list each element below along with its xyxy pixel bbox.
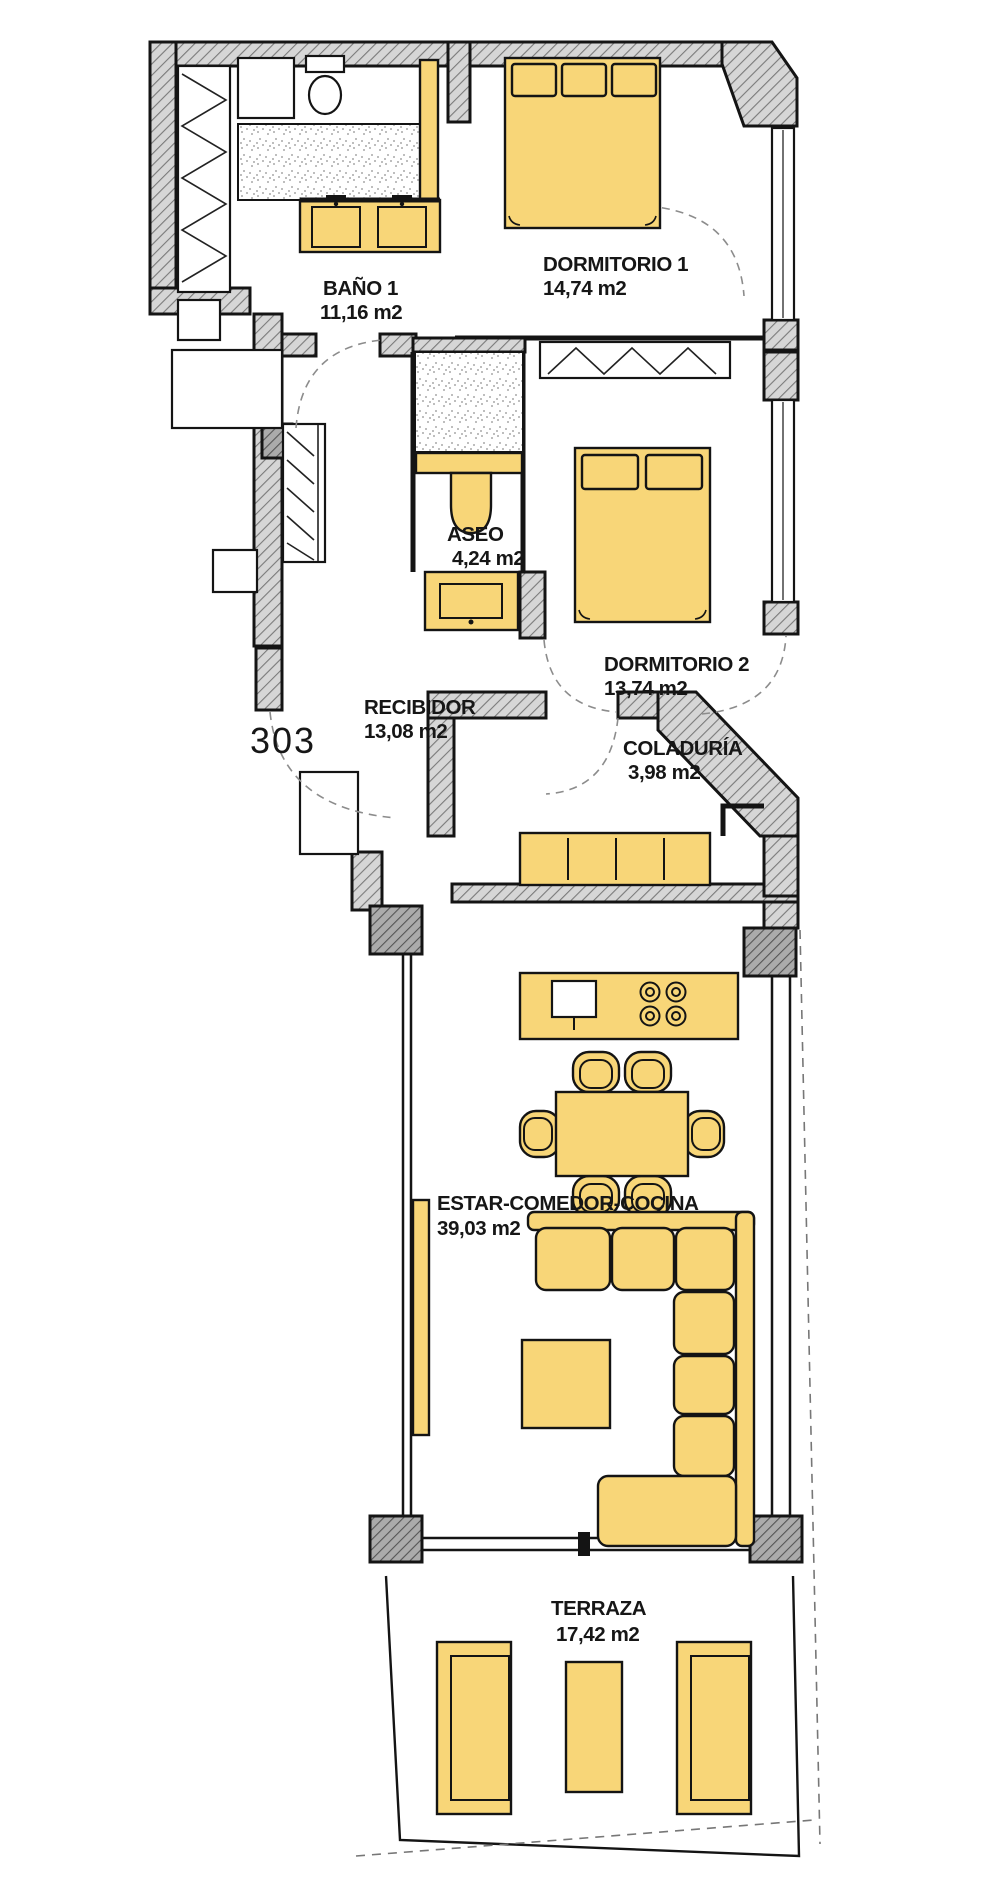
- room-name-terraza: TERRAZA: [551, 1597, 647, 1620]
- dining-chair: [520, 1111, 560, 1157]
- room-name-dormitorio1: DORMITORIO 1: [543, 253, 688, 276]
- west-wall: [150, 42, 176, 294]
- bath1-faucet-dot-left: [334, 202, 338, 206]
- sideboard: [413, 1200, 429, 1435]
- entry-shaft: [300, 772, 358, 854]
- bed1-pillow-1: [512, 64, 556, 96]
- hall-north-wall-a: [282, 334, 316, 356]
- bedroom2-door-swing: [544, 640, 616, 712]
- room-name-estar: ESTAR-COMEDOR-COCINA: [437, 1192, 699, 1215]
- dining-chair: [684, 1111, 724, 1157]
- coladuria-door-swing: [546, 718, 618, 794]
- bath1-group: [238, 56, 440, 252]
- room-area-terraza: 17,42 m2: [556, 1623, 639, 1646]
- bedroom2-door-leaf: [520, 572, 545, 638]
- floor-plan-drawing: BAÑO 1 11,16 m2 DORMITORIO 1 14,74 m2 AS…: [0, 0, 1000, 1894]
- bed1-pillow-2: [562, 64, 606, 96]
- bath1-partition-stub: [448, 42, 470, 122]
- shaft-upper: [178, 300, 220, 340]
- lounger-left: [437, 1642, 511, 1814]
- coffee-table: [522, 1340, 610, 1428]
- bed2-pillow-2: [646, 455, 702, 489]
- kitchen-sink: [552, 981, 596, 1017]
- room-name-recibidor: RECIBIDOR: [364, 696, 476, 719]
- coladuria-south-wall: [452, 884, 798, 902]
- bath1-shower-tray: [238, 58, 294, 118]
- aseo-group: [415, 352, 523, 630]
- east-wall-block-3: [764, 602, 798, 634]
- hall-window-box: [213, 550, 257, 592]
- shaft-lower: [172, 350, 282, 428]
- room-name-aseo: ASEO: [447, 523, 504, 546]
- pillar-living-nw: [370, 906, 422, 954]
- dining-chair: [573, 1052, 619, 1092]
- northeast-corner-wall: [722, 42, 797, 126]
- bath1-faucet-dot-right: [400, 202, 404, 206]
- terrace-table: [566, 1662, 622, 1792]
- bath1-shower-floor: [238, 124, 420, 200]
- bed2-pillow-1: [582, 455, 638, 489]
- bath1-side-panel: [420, 60, 438, 200]
- overhang-dashed-right: [800, 930, 820, 1844]
- aseo-shelf: [416, 453, 522, 473]
- east-wall-block-5: [764, 902, 798, 928]
- room-area-dormitorio1: 14,74 m2: [543, 277, 626, 300]
- bath1-faucet-right: [392, 195, 412, 200]
- room-area-estar: 39,03 m2: [437, 1217, 520, 1240]
- room-area-bano1: 11,16 m2: [320, 301, 402, 324]
- bed1-pillow-3: [612, 64, 656, 96]
- dining-chair: [625, 1052, 671, 1092]
- aseo-shower-floor: [415, 352, 523, 452]
- dining-table: [556, 1092, 688, 1176]
- room-name-bano1: BAÑO 1: [323, 277, 398, 300]
- east-wall-block-4: [764, 836, 798, 896]
- room-area-aseo: 4,24 m2: [452, 547, 524, 570]
- room-name-coladuria: COLADURÍA: [623, 737, 743, 760]
- room-area-recibidor: 13,08 m2: [364, 720, 447, 743]
- entry-door-leaf: [256, 648, 282, 710]
- overhang-dashed-bottom: [356, 1820, 814, 1856]
- bath1-toilet-bowl: [309, 76, 341, 114]
- bath1-toilet-tank: [306, 56, 344, 72]
- bedroom2-group: [575, 448, 710, 622]
- terrace-slider-mullion: [578, 1532, 590, 1556]
- room-name-dormitorio2: DORMITORIO 2: [604, 653, 749, 676]
- bedroom1-group: [505, 58, 660, 228]
- lounger-right: [677, 1642, 751, 1814]
- pillar-living-se: [750, 1516, 802, 1562]
- floor-plan: BAÑO 1 11,16 m2 DORMITORIO 1 14,74 m2 AS…: [0, 0, 1000, 1894]
- room-area-coladuria: 3,98 m2: [628, 761, 700, 784]
- aseo-cabinet-knob: [469, 620, 474, 625]
- east-wall-block-2: [764, 352, 798, 400]
- entry-lower-wall: [352, 852, 382, 910]
- coladuria-group: [520, 833, 710, 885]
- pillar-living-ne: [744, 928, 796, 976]
- east-wall-block-1: [764, 320, 798, 350]
- room-area-dormitorio2: 13,74 m2: [604, 677, 687, 700]
- bath1-faucet-left: [326, 195, 346, 200]
- living-kitchen-group: [413, 973, 754, 1546]
- bedroom1-door-swing: [648, 206, 744, 296]
- apartment-number: 303: [250, 720, 316, 761]
- pillar-living-sw: [370, 1516, 422, 1562]
- aseo-north-wall: [413, 338, 525, 352]
